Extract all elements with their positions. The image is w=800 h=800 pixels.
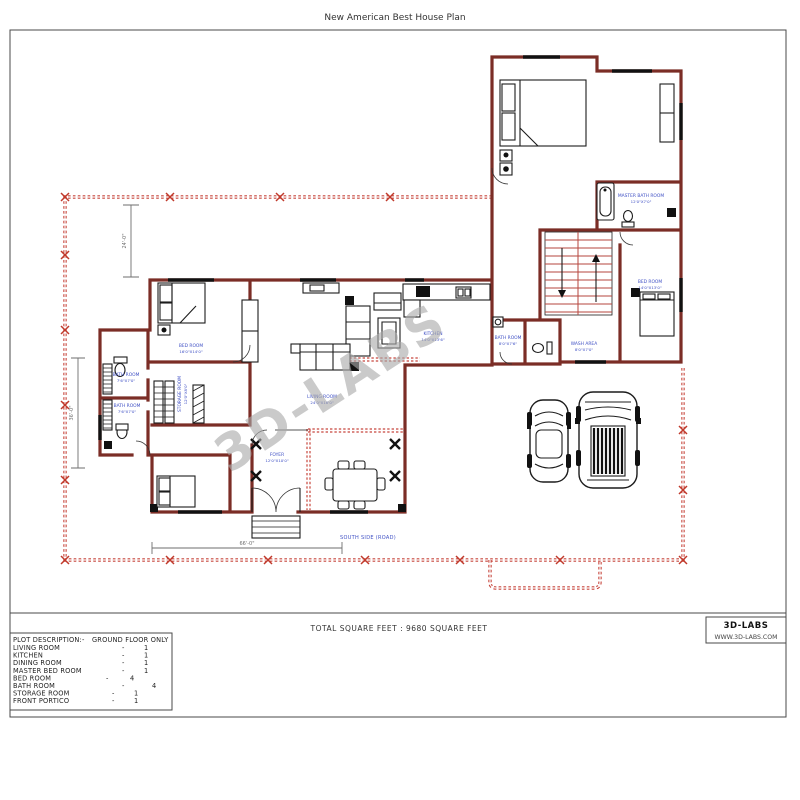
label-bed1-size: 16'0"X14'0" (179, 349, 202, 354)
plot-description-table: PLOT DESCRIPTION:- GROUND FLOOR ONLY LIV… (10, 633, 172, 710)
master-bath-fixtures (597, 183, 634, 227)
entrance-doors-steps (252, 488, 300, 538)
label-master-bath-size: 12'0"X7'0" (631, 199, 652, 204)
floor-plan-canvas: New American Best House Plan (0, 0, 800, 800)
bedroom1-furniture (158, 283, 258, 362)
plot-row-dash: - (112, 697, 115, 705)
dim-bottom-horizontal: 66'-0" (239, 541, 254, 547)
master-bed (500, 80, 674, 175)
dining-table (325, 461, 385, 509)
logo-name: 3D-LABS (724, 621, 769, 631)
total-square-feet-text: TOTAL SQUARE FEET : 9680 SQUARE FEET (310, 624, 488, 633)
staircase (545, 232, 612, 315)
plot-row-dash: - (106, 674, 109, 682)
plot-row-dash: - (122, 667, 125, 675)
label-common-bath-size: 8'0"X7'6" (499, 341, 517, 346)
label-bath2-size: 7'6"X7'0" (118, 409, 136, 414)
dim-top-vertical: 24'-0" (122, 233, 128, 248)
plot-row-label: FRONT PORTICO (13, 697, 69, 705)
plot-desc-header-label: PLOT DESCRIPTION:- (13, 636, 85, 644)
plot-row-count: 4 (130, 674, 134, 682)
label-storage-size: 12'0"X8'0" (183, 383, 188, 404)
logo-website: WWW.3D-LABS.COM (715, 634, 778, 641)
plot-row-count: 4 (152, 682, 156, 690)
drawing-sheet: New American Best House Plan (0, 0, 800, 800)
label-bath1-size: 7'6"X7'0" (117, 378, 135, 383)
page-title: New American Best House Plan (324, 13, 465, 23)
plot-row-count: 1 (144, 667, 148, 675)
car-sedan (527, 400, 571, 482)
label-road: SOUTH SIDE (ROAD) (340, 535, 396, 541)
right-bedroom-bed (640, 292, 674, 336)
dim-left-vertical: 36'-0" (69, 405, 75, 420)
car-suv (575, 392, 641, 488)
plot-row-count: 1 (134, 697, 138, 705)
bedroom3-bed (157, 476, 195, 507)
plot-row-dash: - (122, 682, 125, 690)
label-wash-size: 8'0"X7'0" (575, 347, 593, 352)
label-bed-right-size: 14'0"X13'0" (638, 285, 661, 290)
plot-desc-header-value: GROUND FLOOR ONLY (92, 636, 169, 644)
